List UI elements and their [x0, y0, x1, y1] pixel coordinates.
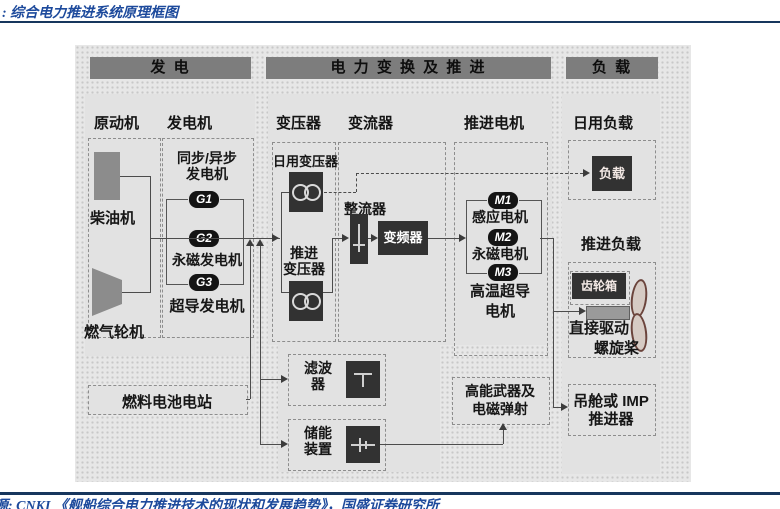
connector-line — [553, 407, 561, 408]
pm-motor-label: 永磁电机 — [454, 244, 546, 264]
connector-line — [150, 176, 151, 293]
arrowhead — [583, 169, 590, 177]
column-label-propulsion-motor: 推进电机 — [464, 112, 524, 133]
transformer-coil-icon — [304, 293, 321, 310]
storage-label-line2: 装置 — [292, 439, 344, 459]
connector-line — [260, 379, 281, 380]
connector-line — [540, 238, 553, 239]
filter-label-line2: 器 — [292, 374, 344, 394]
arrowhead — [272, 234, 279, 242]
inverter-block: 变频器 — [378, 221, 428, 255]
propulsion-load-label: 推进负载 — [566, 233, 656, 254]
rectifier-icon — [350, 214, 368, 264]
weapon-label-line1: 高能武器及 — [452, 381, 548, 401]
daily-transformer-label: 日用变压器 — [273, 151, 338, 170]
column-label-daily-load: 日用负载 — [573, 112, 633, 133]
arrowhead — [281, 375, 288, 383]
dashed-connector-line — [356, 173, 357, 192]
hts-motor-label-line2: 电机 — [454, 300, 546, 321]
diesel-engine-label: 柴油机 — [90, 207, 135, 228]
prop-transformer-label-line2: 变压器 — [276, 259, 332, 279]
daily-load-block: 负载 — [592, 156, 632, 191]
battery-glyph-icon — [365, 441, 367, 449]
filter-glyph-icon — [362, 373, 364, 387]
section-bar-generation: 发 电 — [90, 57, 251, 79]
weapon-label-line2: 电磁弹射 — [452, 399, 548, 419]
connector-line — [122, 292, 150, 293]
figure-title: : 综合电力推进系统原理框图 — [2, 2, 178, 22]
arrowhead — [371, 234, 378, 242]
gearbox-block: 齿轮箱 — [572, 273, 626, 299]
connector-line — [281, 192, 289, 193]
battery-glyph-icon — [351, 444, 375, 446]
connector-line — [281, 192, 282, 293]
arrowhead — [459, 234, 466, 242]
generator-badge-g3: G3 — [189, 274, 219, 291]
arrowhead — [579, 307, 586, 315]
arrowhead-up — [499, 423, 507, 430]
daily-transformer-icon — [289, 172, 323, 212]
generator-badge-g1: G1 — [189, 191, 219, 208]
pod-label-line2: 推进器 — [568, 408, 654, 429]
connector-line — [281, 292, 289, 293]
dashed-connector-line — [356, 173, 583, 174]
battery-glyph-icon — [359, 438, 361, 452]
transformer-coil-icon — [304, 184, 321, 201]
top-rule — [0, 21, 780, 23]
arrowhead-up — [246, 239, 254, 246]
connector-line — [428, 238, 459, 239]
direct-drive-label: 直接驱动 — [569, 317, 629, 338]
connector-line — [250, 246, 251, 399]
connector-line — [260, 444, 281, 445]
dashed-connector-line — [324, 192, 356, 193]
column-label-prime-mover: 原动机 — [94, 112, 139, 133]
connector-line — [503, 430, 504, 444]
section-bar-conversion: 电 力 变 换 及 推 进 — [266, 57, 551, 79]
connector-line — [553, 311, 579, 312]
arrowhead — [561, 403, 568, 411]
connector-line — [120, 176, 150, 177]
rectifier-glyph-icon — [353, 244, 365, 246]
connector-line — [323, 292, 332, 293]
source-note: 源: CNKI 《舰船综合电力推进技术的现状和发展趋势》，国盛证券研究所 — [0, 495, 439, 509]
column-label-generator: 发电机 — [167, 112, 212, 133]
connector-line — [553, 238, 554, 408]
prop-transformer-icon — [289, 281, 323, 321]
arrowhead-up — [256, 239, 264, 246]
storage-icon — [346, 426, 380, 463]
column-label-converter: 变流器 — [348, 112, 393, 133]
arrowhead — [281, 440, 288, 448]
propeller-label: 螺旋桨 — [594, 337, 639, 358]
gas-turbine-label: 燃气轮机 — [84, 321, 144, 342]
arrowhead — [342, 234, 349, 242]
report-figure-page: : 综合电力推进系统原理框图 源: CNKI 《舰船综合电力推进技术的现状和发展… — [0, 0, 780, 509]
motor-badge-m3: M3 — [488, 264, 518, 281]
sync-async-label-line2: 发电机 — [162, 164, 252, 184]
diesel-engine-icon — [94, 152, 120, 200]
connector-line — [332, 238, 333, 293]
filter-icon — [346, 361, 380, 398]
rectifier-glyph-icon — [358, 224, 360, 252]
section-bar-load: 负 载 — [566, 57, 658, 79]
connector-line — [380, 444, 503, 445]
column-label-transformer: 变压器 — [276, 112, 321, 133]
connector-line — [246, 399, 250, 400]
sc-generator-label: 超导发电机 — [158, 295, 256, 316]
hts-motor-label-line1: 高温超导 — [454, 280, 546, 301]
pm-generator-label: 永磁发电机 — [160, 250, 254, 270]
induction-motor-label: 感应电机 — [454, 207, 546, 227]
fuel-cell-label: 燃料电池电站 — [88, 391, 246, 412]
connector-line — [260, 246, 261, 444]
